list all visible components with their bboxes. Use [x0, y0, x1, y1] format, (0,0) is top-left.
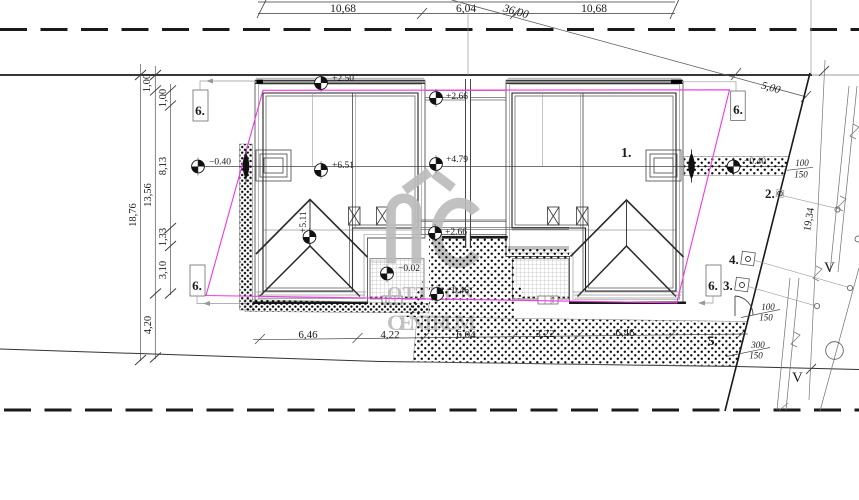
svg-text:2.: 2. — [765, 186, 775, 201]
svg-text:18,76: 18,76 — [128, 203, 139, 227]
svg-text:100: 100 — [795, 158, 809, 168]
svg-text:1,33: 1,33 — [158, 228, 169, 246]
svg-text:300: 300 — [750, 340, 765, 350]
svg-text:10,68: 10,68 — [330, 3, 356, 15]
svg-text:3,22: 3,22 — [535, 328, 554, 340]
svg-text:13,56: 13,56 — [143, 183, 154, 207]
svg-text:4,20: 4,20 — [143, 316, 154, 334]
svg-text:6.: 6. — [733, 102, 743, 117]
svg-text:6,46: 6,46 — [298, 329, 318, 341]
svg-text:+2.50: +2.50 — [332, 74, 354, 84]
svg-text:1,00: 1,00 — [142, 74, 153, 92]
svg-text:150: 150 — [759, 313, 773, 323]
svg-text:+2.66: +2.66 — [446, 92, 468, 102]
svg-text:6.: 6. — [708, 278, 718, 293]
svg-text:+4.79: +4.79 — [446, 155, 468, 165]
svg-text:4.: 4. — [729, 252, 739, 267]
svg-text:100: 100 — [761, 302, 775, 312]
svg-text:+5.11: +5.11 — [299, 211, 309, 233]
svg-text:−0.46: −0.46 — [447, 286, 469, 296]
svg-text:8,13: 8,13 — [158, 157, 169, 175]
svg-text:V: V — [792, 370, 803, 386]
svg-text:6,46: 6,46 — [615, 327, 635, 339]
svg-text:−0.02: −0.02 — [398, 264, 420, 274]
svg-text:6,04: 6,04 — [456, 3, 476, 15]
svg-text:150: 150 — [749, 351, 763, 361]
svg-text:10,68: 10,68 — [581, 3, 607, 15]
svg-text:−0.40: −0.40 — [209, 158, 231, 168]
svg-text:V: V — [824, 260, 835, 276]
svg-text:150: 150 — [794, 170, 808, 180]
svg-text:3,10: 3,10 — [158, 261, 169, 279]
svg-text:+2.66: +2.66 — [445, 228, 467, 238]
svg-text:5.: 5. — [708, 333, 718, 348]
svg-text:4,22: 4,22 — [380, 329, 399, 341]
svg-text:+6.51: +6.51 — [332, 161, 354, 171]
svg-text:6.: 6. — [192, 278, 202, 293]
svg-text:1.: 1. — [621, 146, 632, 161]
svg-text:6.: 6. — [195, 103, 205, 118]
svg-text:1,00: 1,00 — [158, 89, 169, 107]
svg-text:−0.40: −0.40 — [744, 157, 766, 167]
svg-text:3.: 3. — [723, 278, 733, 293]
svg-text:6,04: 6,04 — [456, 329, 476, 341]
